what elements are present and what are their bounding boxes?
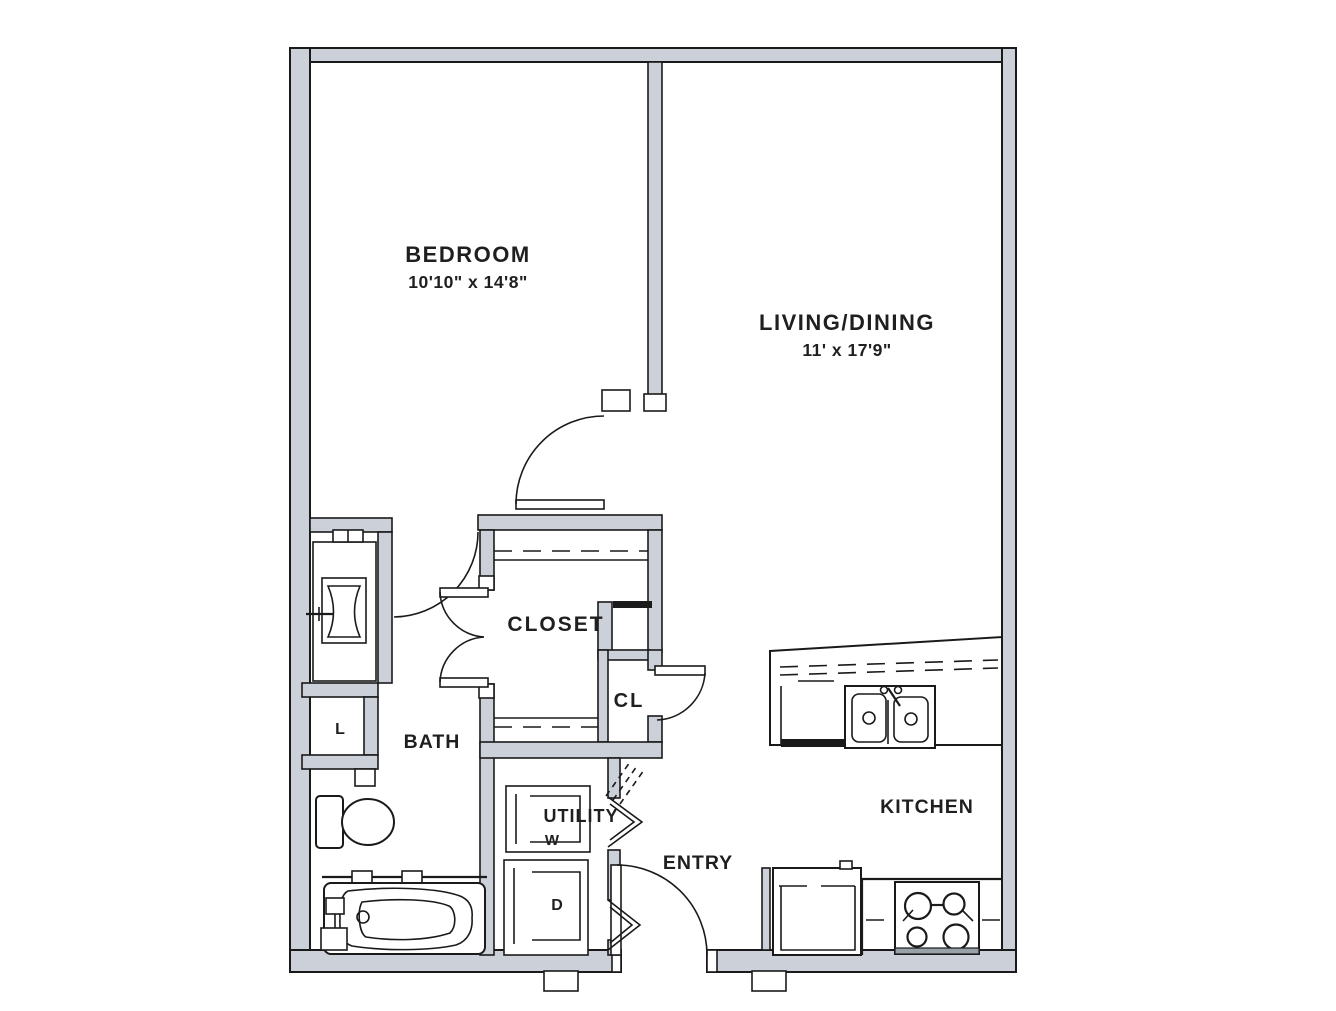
floorplan-page: BEDROOM 10'10" x 14'8" LIVING/DINING 11'… xyxy=(0,0,1336,1011)
wall-kitchen-stub xyxy=(762,868,770,950)
tub-faucet-spout xyxy=(321,928,347,950)
bedroom-door-leaf xyxy=(516,500,604,509)
foundation-tab-right xyxy=(752,971,786,991)
bath-label: BATH xyxy=(404,731,461,753)
stove xyxy=(895,882,979,954)
bedroom-label: BEDROOM xyxy=(405,242,530,267)
living-dining-dimensions: 11' x 17'9" xyxy=(802,340,891,360)
wall-top xyxy=(290,48,1016,62)
wall-closet-bottom xyxy=(480,742,662,758)
refrigerator-handle xyxy=(840,861,852,869)
closet-label: CLOSET xyxy=(507,613,604,636)
cl-door-leaf xyxy=(655,666,705,675)
bedroom-door-swing xyxy=(516,416,604,504)
wall-right xyxy=(1002,48,1016,972)
washer-label: W xyxy=(545,832,560,849)
entry-jamb-right xyxy=(707,950,717,972)
wall-vanity-nook xyxy=(378,532,392,683)
wall-bedroom-living xyxy=(648,62,662,398)
utility-label: UTILITY xyxy=(544,806,619,826)
living-dining-label: LIVING/DINING xyxy=(759,310,935,335)
closet-door-swing-bottom xyxy=(440,637,484,682)
linen-tab xyxy=(355,769,375,786)
closet-door-leaf-bottom xyxy=(440,678,488,687)
wall-closet-east xyxy=(648,530,662,652)
toilet-bowl xyxy=(342,799,394,845)
linen-label: L xyxy=(335,721,345,738)
wall-closet-top xyxy=(478,515,662,530)
dryer xyxy=(504,860,588,955)
wall-linen-top xyxy=(302,683,378,697)
foundation-tab-left xyxy=(544,971,578,991)
refrigerator xyxy=(773,861,861,955)
wall-cl-west xyxy=(598,650,608,742)
bathtub xyxy=(321,883,485,954)
floorplan-drawing: BEDROOM 10'10" x 14'8" LIVING/DINING 11'… xyxy=(0,0,1336,1011)
entry-door-swing xyxy=(617,865,707,955)
dryer-label: D xyxy=(551,897,563,914)
bath-door-swing xyxy=(394,532,478,617)
cl-label: CL xyxy=(614,690,645,712)
toilet-tank xyxy=(316,796,343,848)
closet-door-leaf-top xyxy=(440,588,488,597)
cl-shelf-bar xyxy=(613,601,652,608)
wall-left xyxy=(290,48,310,972)
cl-door-swing xyxy=(657,673,705,720)
kitchen-sink xyxy=(845,686,935,748)
tub-faucet-valve xyxy=(326,898,344,914)
sink-bowl-left xyxy=(852,694,886,742)
toilet xyxy=(316,796,394,848)
wall-linen-bottom xyxy=(302,755,378,769)
kitchen-label: KITCHEN xyxy=(880,796,974,818)
wall-linen-east xyxy=(364,697,378,755)
bedroom-dimensions: 10'10" x 14'8" xyxy=(408,272,528,292)
bedroom-door-notch xyxy=(602,390,630,411)
bedroom-door-jamb xyxy=(644,394,666,411)
entry-label: ENTRY xyxy=(663,852,733,874)
